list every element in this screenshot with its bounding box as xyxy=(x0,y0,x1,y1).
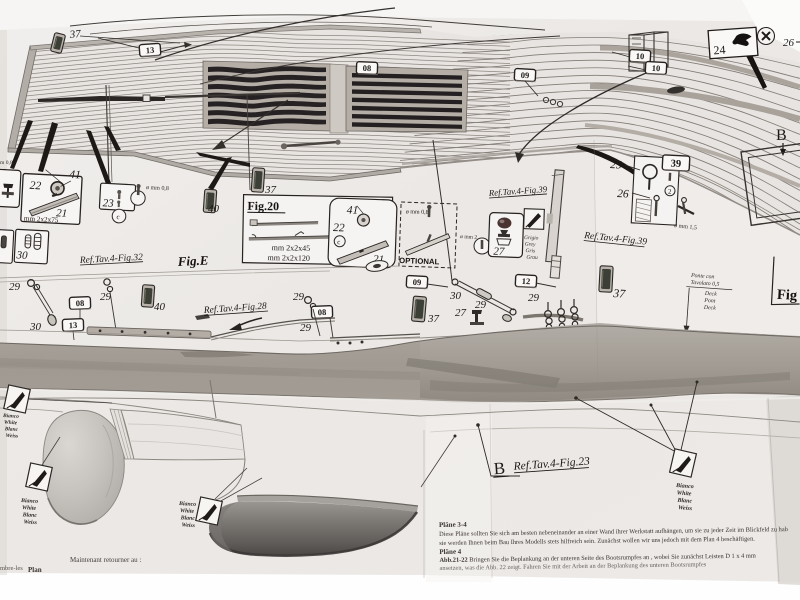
svg-text:Gris: Gris xyxy=(525,248,535,254)
svg-text:Maintenant retourner au :: Maintenant retourner au : xyxy=(70,556,141,564)
svg-text:Pläne 4: Pläne 4 xyxy=(439,548,462,556)
svg-text:39: 39 xyxy=(670,159,681,171)
svg-text:m 0,8: m 0,8 xyxy=(0,160,13,166)
svg-text:40: 40 xyxy=(154,301,166,313)
svg-text:29: 29 xyxy=(475,299,487,311)
svg-text:37: 37 xyxy=(264,184,277,196)
svg-text:White: White xyxy=(677,490,692,497)
svg-text:Weiss: Weiss xyxy=(678,505,693,512)
svg-text:Pläne 3-4: Pläne 3-4 xyxy=(439,521,467,529)
svg-text:Grigio: Grigio xyxy=(524,235,539,242)
svg-text:Bianco: Bianco xyxy=(178,501,196,508)
svg-text:22: 22 xyxy=(333,222,345,234)
svg-text:23: 23 xyxy=(102,197,114,210)
svg-text:09: 09 xyxy=(520,70,529,80)
svg-text:37: 37 xyxy=(68,28,81,41)
svg-text:27: 27 xyxy=(455,307,467,319)
svg-text:Fig.20: Fig.20 xyxy=(247,199,279,214)
svg-text:37: 37 xyxy=(612,286,627,301)
svg-text:29: 29 xyxy=(293,291,305,303)
svg-text:ø mm 2: ø mm 2 xyxy=(460,234,478,241)
svg-text:Blanc: Blanc xyxy=(676,498,692,505)
svg-text:41: 41 xyxy=(69,169,81,182)
svg-text:Deck: Deck xyxy=(704,291,718,298)
svg-text:Grau: Grau xyxy=(526,255,538,261)
svg-text:12: 12 xyxy=(521,276,530,286)
svg-text:Grey: Grey xyxy=(525,242,536,248)
svg-text:Deck: Deck xyxy=(703,305,717,312)
svg-text:White: White xyxy=(22,505,37,512)
svg-text:26: 26 xyxy=(783,37,795,49)
svg-text:30: 30 xyxy=(449,290,462,302)
svg-text:22: 22 xyxy=(29,180,41,193)
svg-text:08: 08 xyxy=(76,298,85,308)
svg-text:40: 40 xyxy=(208,203,220,215)
svg-text:13: 13 xyxy=(145,45,154,56)
svg-text:13: 13 xyxy=(69,320,78,330)
svg-text:c: c xyxy=(337,238,340,246)
svg-text:Fig.E: Fig.E xyxy=(176,252,209,269)
svg-text:White: White xyxy=(180,508,195,515)
svg-text:41: 41 xyxy=(347,204,359,216)
svg-text:Weiss: Weiss xyxy=(5,433,18,440)
svg-text:Weiss: Weiss xyxy=(23,519,37,526)
svg-text:29: 29 xyxy=(9,281,21,293)
svg-text:Fig: Fig xyxy=(777,287,799,304)
svg-text:mm 2x2x45: mm 2x2x45 xyxy=(272,243,311,253)
svg-text:mm 2x2x120: mm 2x2x120 xyxy=(267,253,310,263)
svg-text:ø mm 0,8: ø mm 0,8 xyxy=(146,185,169,192)
svg-text:ø mm 0,8: ø mm 0,8 xyxy=(406,209,429,216)
svg-text:09: 09 xyxy=(412,277,421,287)
svg-text:27: 27 xyxy=(493,246,505,258)
svg-text:Blanc: Blanc xyxy=(22,512,38,519)
svg-text:24: 24 xyxy=(713,43,726,58)
svg-text:Plan: Plan xyxy=(28,566,42,574)
svg-text:c: c xyxy=(116,213,120,221)
svg-text:mbre-les: mbre-les xyxy=(0,565,23,572)
svg-text:29: 29 xyxy=(528,292,540,304)
svg-text:B: B xyxy=(776,127,787,144)
svg-text:26: 26 xyxy=(617,188,629,201)
svg-text:25: 25 xyxy=(610,159,622,172)
svg-text:10: 10 xyxy=(651,63,660,73)
svg-text:Bianco: Bianco xyxy=(20,498,38,505)
svg-text:37: 37 xyxy=(427,313,440,325)
svg-text:08: 08 xyxy=(363,63,372,73)
svg-text:30: 30 xyxy=(15,249,28,262)
svg-text:OPTIONAL: OPTIONAL xyxy=(399,256,440,266)
svg-text:29: 29 xyxy=(300,322,312,334)
svg-text:Blanc: Blanc xyxy=(180,515,196,522)
svg-text:10: 10 xyxy=(635,51,644,61)
svg-text:Weiss: Weiss xyxy=(181,522,195,529)
svg-text:Pont: Pont xyxy=(703,298,716,305)
svg-text:B: B xyxy=(493,458,506,478)
svg-text:08: 08 xyxy=(318,307,327,317)
